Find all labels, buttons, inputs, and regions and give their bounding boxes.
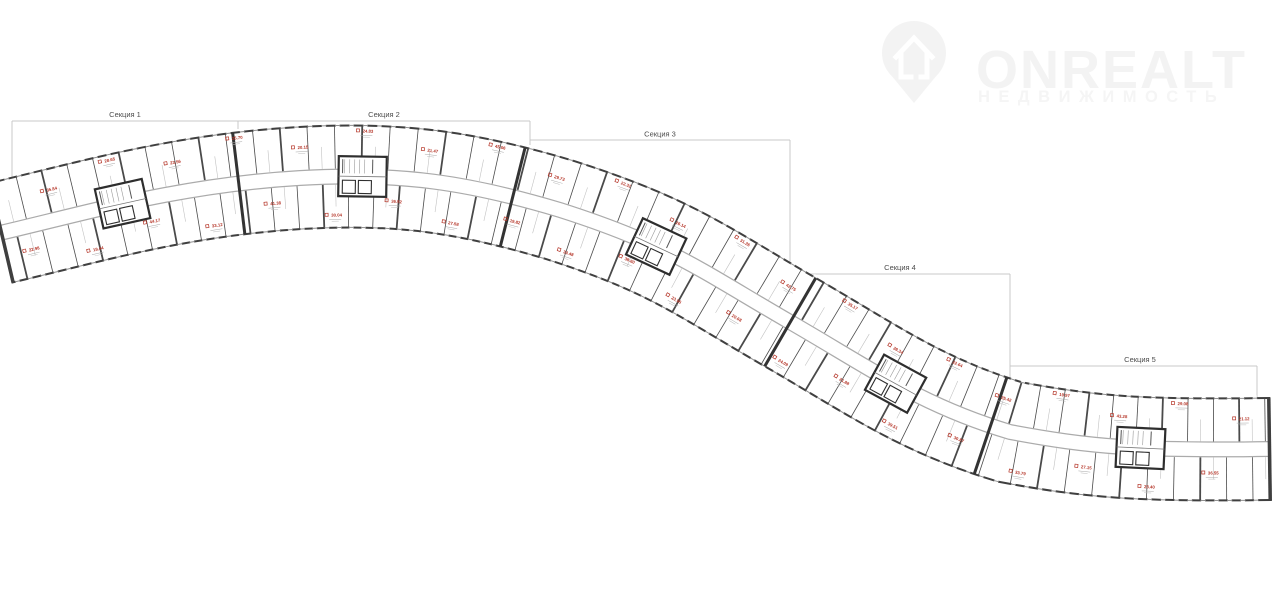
window-gap (174, 138, 175, 146)
window-glass (226, 236, 231, 237)
window-gap (204, 235, 205, 243)
window-gap (1026, 482, 1027, 490)
logo-pin-point (891, 75, 937, 103)
window-gap (290, 225, 291, 233)
window-gap (1095, 491, 1096, 499)
building-end-wall (1269, 398, 1270, 501)
window-gap (1011, 377, 1013, 385)
elevator-shaft (104, 209, 120, 225)
elevator-shaft (358, 180, 371, 193)
window-gap (1000, 373, 1003, 381)
window-gap (1108, 492, 1109, 500)
unit-area-value: 41.38 (270, 200, 282, 206)
window-gap (470, 235, 472, 243)
building-floorplan: 22.9835.8419.4428.6544.1723.5633.1225.70… (0, 122, 1271, 503)
window-gap (201, 134, 202, 142)
unit-area-value: 36.92 (391, 199, 403, 205)
window-glass (433, 130, 438, 131)
window-gap (449, 129, 450, 137)
window-gap (95, 155, 97, 163)
window-glass (253, 130, 258, 131)
window-gap (608, 170, 611, 178)
window-gap (564, 260, 567, 268)
window-gap (283, 125, 284, 133)
window-gap (1079, 389, 1080, 397)
window-gap (16, 276, 18, 284)
window-gap (1030, 381, 1031, 389)
window-gap (1128, 393, 1129, 401)
window-gap (216, 233, 217, 241)
window-gap (121, 149, 123, 157)
window-gap (458, 232, 459, 240)
window-gap (215, 132, 216, 140)
floorplan-canvas: ONREALT НЕДВИЖИМОСТЬ (0, 0, 1280, 590)
stair-elevator-core (338, 156, 387, 197)
window-gap (18, 173, 20, 181)
window-gap (1081, 490, 1082, 498)
window-gap (130, 249, 132, 257)
window-gap (92, 258, 94, 266)
unit-area-value: 29.08 (1178, 401, 1189, 406)
window-gap (989, 369, 992, 376)
window-gap (434, 228, 435, 236)
window-gap (117, 252, 119, 260)
window-gap (954, 462, 957, 469)
window-gap (1053, 486, 1054, 494)
window-gap (446, 230, 447, 238)
window-gap (142, 247, 144, 255)
stair-elevator-core (1116, 427, 1166, 469)
window-gap (6, 176, 8, 184)
section-label-5: Секция 5 (1124, 355, 1156, 364)
unit-area-value: 21.12 (1239, 416, 1250, 421)
unit-area-value: 43.28 (1116, 413, 1128, 419)
window-glass (1078, 494, 1083, 495)
elevator-shaft (1136, 452, 1150, 466)
stair-wall (1121, 430, 1122, 444)
window-gap (56, 164, 58, 172)
window-gap (505, 243, 507, 251)
section-label-1: Секция 1 (109, 110, 141, 119)
window-gap (188, 136, 189, 144)
window-gap (481, 237, 483, 245)
window-gap (541, 253, 543, 261)
window-gap (517, 143, 519, 151)
building-floor (0, 176, 1271, 449)
window-gap (435, 127, 436, 135)
window-gap (634, 180, 637, 187)
window-gap (1067, 488, 1068, 496)
window-glass (226, 133, 231, 134)
window-gap (161, 141, 162, 149)
window-glass (409, 230, 414, 231)
window-gap (255, 127, 256, 135)
window-gap (493, 240, 495, 248)
window-gap (147, 143, 149, 151)
unit-area-value: 36.55 (1208, 470, 1219, 475)
window-gap (1104, 391, 1105, 399)
logo: ONREALT НЕДВИЖИМОСТЬ (882, 21, 1247, 106)
window-gap (1122, 493, 1123, 501)
window-gap (421, 126, 422, 134)
window-gap (529, 249, 531, 257)
window-gap (423, 227, 424, 235)
window-gap (575, 264, 578, 272)
window-gap (530, 146, 532, 154)
window-gap (167, 242, 169, 250)
window-gap (69, 161, 71, 169)
window-glass (263, 232, 268, 233)
logo-pin-icon (882, 21, 946, 103)
window-gap (517, 246, 519, 254)
window-gap (399, 224, 400, 232)
window-gap (29, 273, 31, 281)
window-gap (407, 125, 408, 133)
elevator-shaft (342, 180, 355, 193)
window-gap (1092, 390, 1093, 398)
window-glass (251, 233, 256, 234)
window-gap (583, 161, 585, 169)
window-glass (212, 135, 217, 136)
window-glass (1065, 493, 1070, 494)
window-glass (239, 234, 244, 235)
window-gap (1043, 383, 1044, 391)
window-gap (647, 185, 650, 192)
window-gap (476, 134, 477, 142)
section-label-4: Секция 4 (884, 263, 916, 272)
window-gap (1116, 392, 1117, 400)
window-gap (154, 244, 156, 252)
window-gap (191, 237, 192, 245)
window-gap (269, 126, 270, 134)
floorplan-page: ONREALT НЕДВИЖИМОСТЬ (0, 0, 1280, 590)
window-gap (265, 227, 266, 235)
window-gap (277, 226, 278, 234)
window-glass (1090, 393, 1095, 394)
window-gap (1040, 484, 1041, 492)
window-gap (598, 273, 601, 280)
section-label-2: Секция 2 (368, 110, 400, 119)
window-gap (1013, 480, 1014, 488)
unit-area-value: 20.15 (297, 144, 309, 150)
window-gap (981, 472, 983, 480)
window-gap (967, 467, 970, 475)
logo-tagline: НЕДВИЖИМОСТЬ (978, 88, 1225, 106)
window-gap (42, 270, 44, 278)
window-gap (240, 230, 241, 238)
elevator-shaft (1120, 451, 1134, 465)
window-gap (463, 132, 464, 140)
window-gap (179, 239, 180, 247)
window-gap (596, 166, 599, 174)
unit-area-value: 24.83 (363, 129, 374, 134)
stair-wall (1151, 431, 1152, 445)
window-gap (569, 157, 571, 165)
window-glass (1078, 391, 1083, 392)
window-gap (44, 167, 46, 175)
window-glass (239, 131, 244, 132)
window-gap (55, 267, 57, 275)
unit-area-value: 30.04 (331, 212, 342, 217)
elevator-shaft (120, 206, 136, 222)
window-glass (419, 129, 424, 130)
window-glass (420, 231, 425, 232)
window-gap (253, 228, 254, 236)
window-gap (80, 261, 82, 269)
window-gap (105, 255, 107, 263)
window-gap (543, 150, 545, 158)
window-gap (67, 264, 69, 272)
window-gap (552, 256, 554, 264)
window-gap (82, 158, 84, 166)
window-gap (411, 225, 412, 233)
window-gap (940, 457, 943, 464)
window-gap (134, 146, 136, 154)
window-gap (978, 365, 981, 372)
section-label-3: Секция 3 (644, 130, 676, 139)
window-gap (556, 153, 558, 161)
window-gap (228, 231, 229, 239)
window-gap (587, 269, 590, 277)
unit-area-value: 23.40 (1144, 484, 1156, 489)
window-gap (996, 476, 998, 484)
window-gap (31, 170, 33, 178)
stair-elevator-core (95, 179, 151, 228)
